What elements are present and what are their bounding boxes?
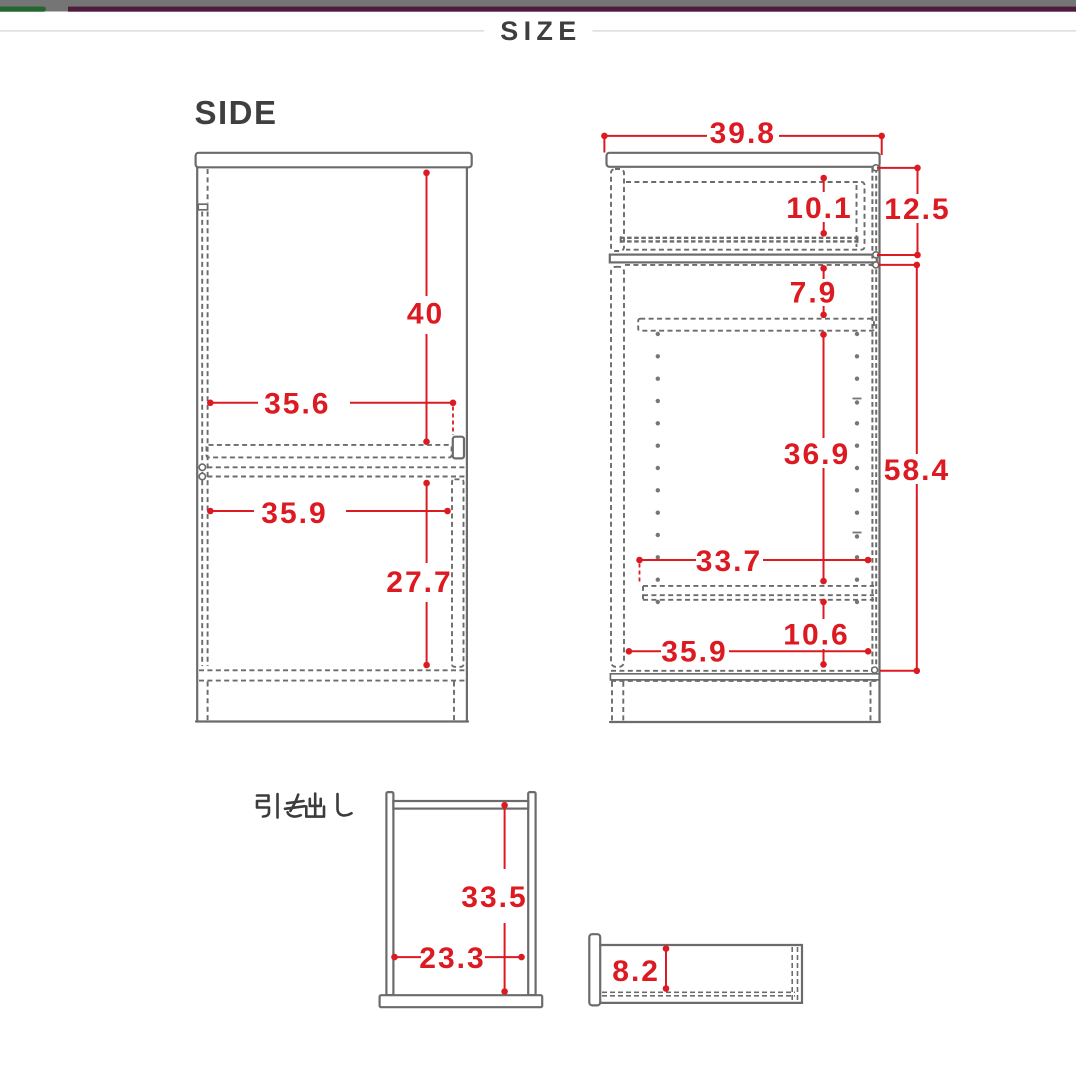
svg-text:35.9: 35.9 bbox=[661, 635, 727, 668]
svg-text:39.8: 39.8 bbox=[710, 117, 776, 150]
svg-text:10.6: 10.6 bbox=[783, 619, 849, 652]
svg-text:35.6: 35.6 bbox=[264, 388, 330, 421]
svg-text:12.5: 12.5 bbox=[884, 193, 950, 226]
svg-text:7.9: 7.9 bbox=[790, 276, 838, 309]
svg-text:58.4: 58.4 bbox=[884, 454, 950, 487]
svg-text:33.7: 33.7 bbox=[696, 545, 762, 578]
svg-text:8.2: 8.2 bbox=[612, 955, 660, 988]
svg-text:SIZE: SIZE bbox=[500, 16, 581, 46]
svg-text:10.1: 10.1 bbox=[786, 192, 852, 225]
svg-text:33.5: 33.5 bbox=[461, 881, 527, 914]
svg-text:23.3: 23.3 bbox=[419, 942, 485, 975]
svg-text:35.9: 35.9 bbox=[261, 497, 327, 530]
svg-text:36.9: 36.9 bbox=[784, 438, 850, 471]
svg-text:SIDE: SIDE bbox=[195, 94, 278, 131]
svg-text:27.7: 27.7 bbox=[386, 566, 452, 599]
svg-text:40: 40 bbox=[407, 298, 444, 331]
